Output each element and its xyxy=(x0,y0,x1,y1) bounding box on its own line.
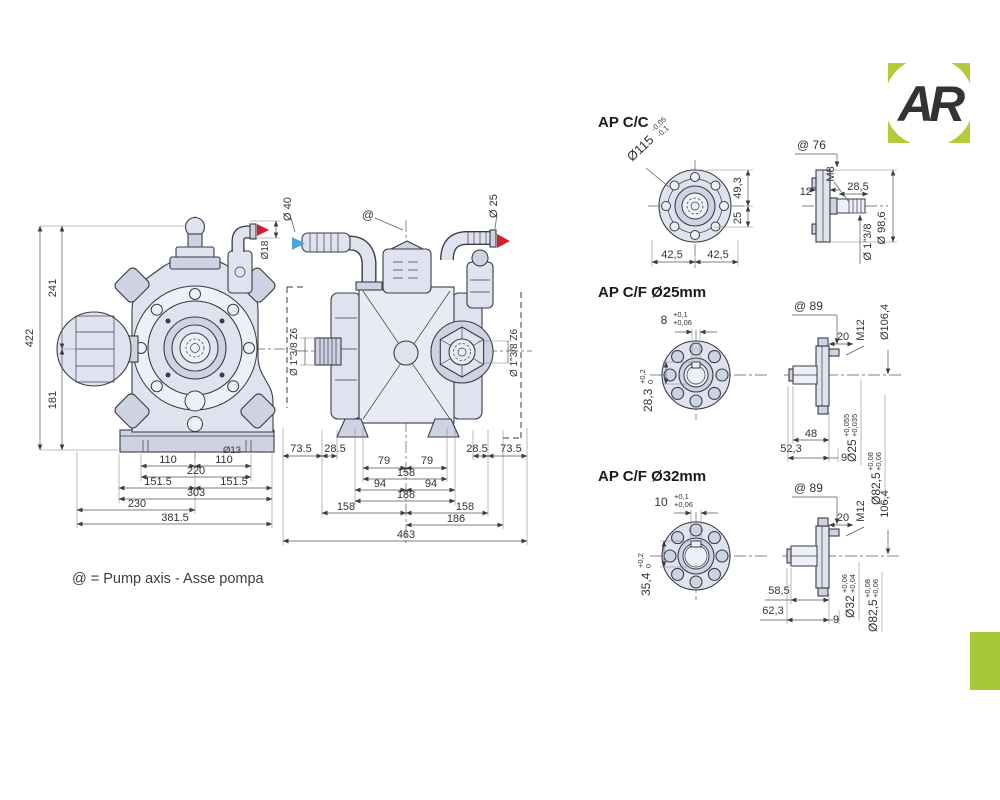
svg-text:+0,04: +0,04 xyxy=(848,574,857,593)
air-chamber xyxy=(383,241,431,293)
svg-text:Ø82,5: Ø82,5 xyxy=(866,599,880,632)
cc-dim-49-3: 49,3 xyxy=(732,177,744,198)
variant-ap-cf32: AP C/F Ø32mm 10 +0,1 +0,06 35,4 xyxy=(598,468,902,632)
dim-base-width: 230 xyxy=(128,498,146,510)
dim-79-right: 79 xyxy=(421,455,433,467)
dim-79-left: 79 xyxy=(378,455,390,467)
dim-foot-span: 303 xyxy=(187,487,205,499)
f32-dim-58-5: 58,5 xyxy=(768,585,789,597)
svg-text:35,4: 35,4 xyxy=(639,572,653,596)
variant-f25-title: AP C/F Ø25mm xyxy=(598,284,706,301)
cc-thread: M8 xyxy=(825,166,837,181)
variant-f32-title: AP C/F Ø32mm xyxy=(598,468,706,485)
outlet-arrow-front xyxy=(257,224,269,236)
front-drain-plug xyxy=(188,417,203,432)
dim-outlet-diameter: Ø 25 xyxy=(488,194,500,218)
front-view-drawing xyxy=(57,216,285,460)
f32-flange-view xyxy=(650,512,768,600)
dimensional-drawing-page: 422 241 181 Ø18 Ø13 110 110 220 151.5 15… xyxy=(0,0,1000,800)
bell-housing xyxy=(431,321,493,383)
dim-foot-right: 151.5 xyxy=(220,476,248,488)
pump-axis-note: @ = Pump axis - Asse pompa xyxy=(72,571,265,587)
f32-dim-62-3: 62,3 xyxy=(762,605,783,617)
pump-dimensional-drawing: 422 241 181 Ø18 Ø13 110 110 220 151.5 15… xyxy=(0,0,1000,800)
svg-text:Ø32: Ø32 xyxy=(843,595,857,618)
outlet-port xyxy=(447,230,496,260)
ar-logo: AR xyxy=(884,57,974,147)
svg-text:+0,06: +0,06 xyxy=(871,579,880,598)
f25-dim-52-3: 52,3 xyxy=(780,443,801,455)
f32-dim-20: 20 xyxy=(837,512,849,524)
axis-symbol: @ xyxy=(362,208,374,222)
dim-94-right: 94 xyxy=(425,478,437,490)
f32-flange-od: 106,4 xyxy=(879,490,891,518)
f25-key-width: 8 xyxy=(661,313,668,327)
dim-28-5-left: 28.5 xyxy=(324,443,345,455)
dim-shaft-left: Ø 1"3/8 Z6 xyxy=(289,328,300,376)
dim-hole-span: 220 xyxy=(187,465,205,477)
dim-overall-width: 381.5 xyxy=(161,512,189,524)
dim-hole-pitch-right: 110 xyxy=(215,454,233,466)
cc-dim-25: 25 xyxy=(732,212,744,224)
f25-dim-9: 9 xyxy=(841,452,847,464)
dim-28-5-right: 28.5 xyxy=(466,443,487,455)
pressure-regulator-front xyxy=(170,218,220,270)
outlet-arrow xyxy=(497,234,510,248)
logo-letters: AR xyxy=(896,76,965,132)
svg-text:0: 0 xyxy=(646,380,655,384)
f25-dim-20: 20 xyxy=(837,331,849,343)
variant-cc-title: AP C/C xyxy=(598,114,649,131)
f25-axis-to-face: @ 89 xyxy=(794,299,823,313)
cc-dim-42-5-right: 42,5 xyxy=(707,249,728,261)
dim-front-outlet: Ø18 xyxy=(260,240,271,259)
dim-axis-to-base: 181 xyxy=(47,391,59,409)
f32-axis-to-face: @ 89 xyxy=(794,481,823,495)
f25-key-height-label: 28,3 +0,2 0 xyxy=(638,369,655,412)
dim-186: 186 xyxy=(447,513,465,525)
front-drain-port xyxy=(185,391,205,411)
accent-bar xyxy=(970,632,1000,690)
f32-key-width: 10 xyxy=(654,495,668,509)
f25-section-view xyxy=(784,338,902,414)
dim-overall-height: 422 xyxy=(24,329,36,347)
f25-thread: M12 xyxy=(855,319,867,340)
dim-158-left: 158 xyxy=(337,501,355,513)
cc-shaft-length: 28,5 xyxy=(847,181,868,193)
cc-plate-thickness: 12 xyxy=(800,186,812,198)
f25-key-width-tol-lo: +0,06 xyxy=(673,318,692,327)
dim-axis-to-top: 241 xyxy=(47,279,59,297)
pto-shaft-left xyxy=(315,338,341,365)
dim-foot-left: 151.5 xyxy=(144,476,172,488)
cc-pilot-diameter: Ø 98,6 xyxy=(876,211,888,244)
f32-key-height-label: 35,4 +0,2 0 xyxy=(636,553,653,596)
bypass-valve-front xyxy=(228,224,256,293)
dim-shaft-right: Ø 1"3/8 Z6 xyxy=(509,329,520,377)
svg-text:+0,06: +0,06 xyxy=(874,452,883,471)
dim-94-left: 94 xyxy=(374,478,386,490)
f32-pilot-diameter-label: Ø82,5 +0,08 +0,06 xyxy=(863,579,880,632)
f32-shaft-diameter-label: Ø32 +0,06 +0,04 xyxy=(840,574,857,618)
f25-flange-view xyxy=(650,330,768,420)
svg-text:0: 0 xyxy=(644,564,653,568)
f25-flange-od: Ø106,4 xyxy=(879,304,891,340)
dim-158-right: 158 xyxy=(456,501,474,513)
dim-inlet-diameter: Ø 40 xyxy=(282,197,294,221)
f25-dim-48: 48 xyxy=(805,428,817,440)
svg-text:28,3: 28,3 xyxy=(641,388,655,412)
pressure-regulator-side xyxy=(467,250,493,308)
dim-hole-pitch-left: 110 xyxy=(159,454,177,466)
svg-text:Ø115: Ø115 xyxy=(624,132,657,164)
cc-axis-to-face: @ 76 xyxy=(797,138,826,152)
variant-ap-cc: AP C/C Ø115 -0,05 -0,1 xyxy=(598,114,897,268)
svg-text:+0,035: +0,035 xyxy=(850,414,859,437)
dim-158-top: 158 xyxy=(397,467,415,479)
dim-73-5-left: 73.5 xyxy=(290,443,311,455)
f32-key-width-tol-lo: +0,06 xyxy=(674,500,693,509)
inlet-port xyxy=(302,233,382,290)
dim-73-5-right: 73.5 xyxy=(500,443,521,455)
cc-dim-42-5-left: 42,5 xyxy=(661,249,682,261)
f32-thread: M12 xyxy=(855,500,867,521)
dim-overall-length: 463 xyxy=(397,529,415,541)
dim-188: 188 xyxy=(397,489,415,501)
